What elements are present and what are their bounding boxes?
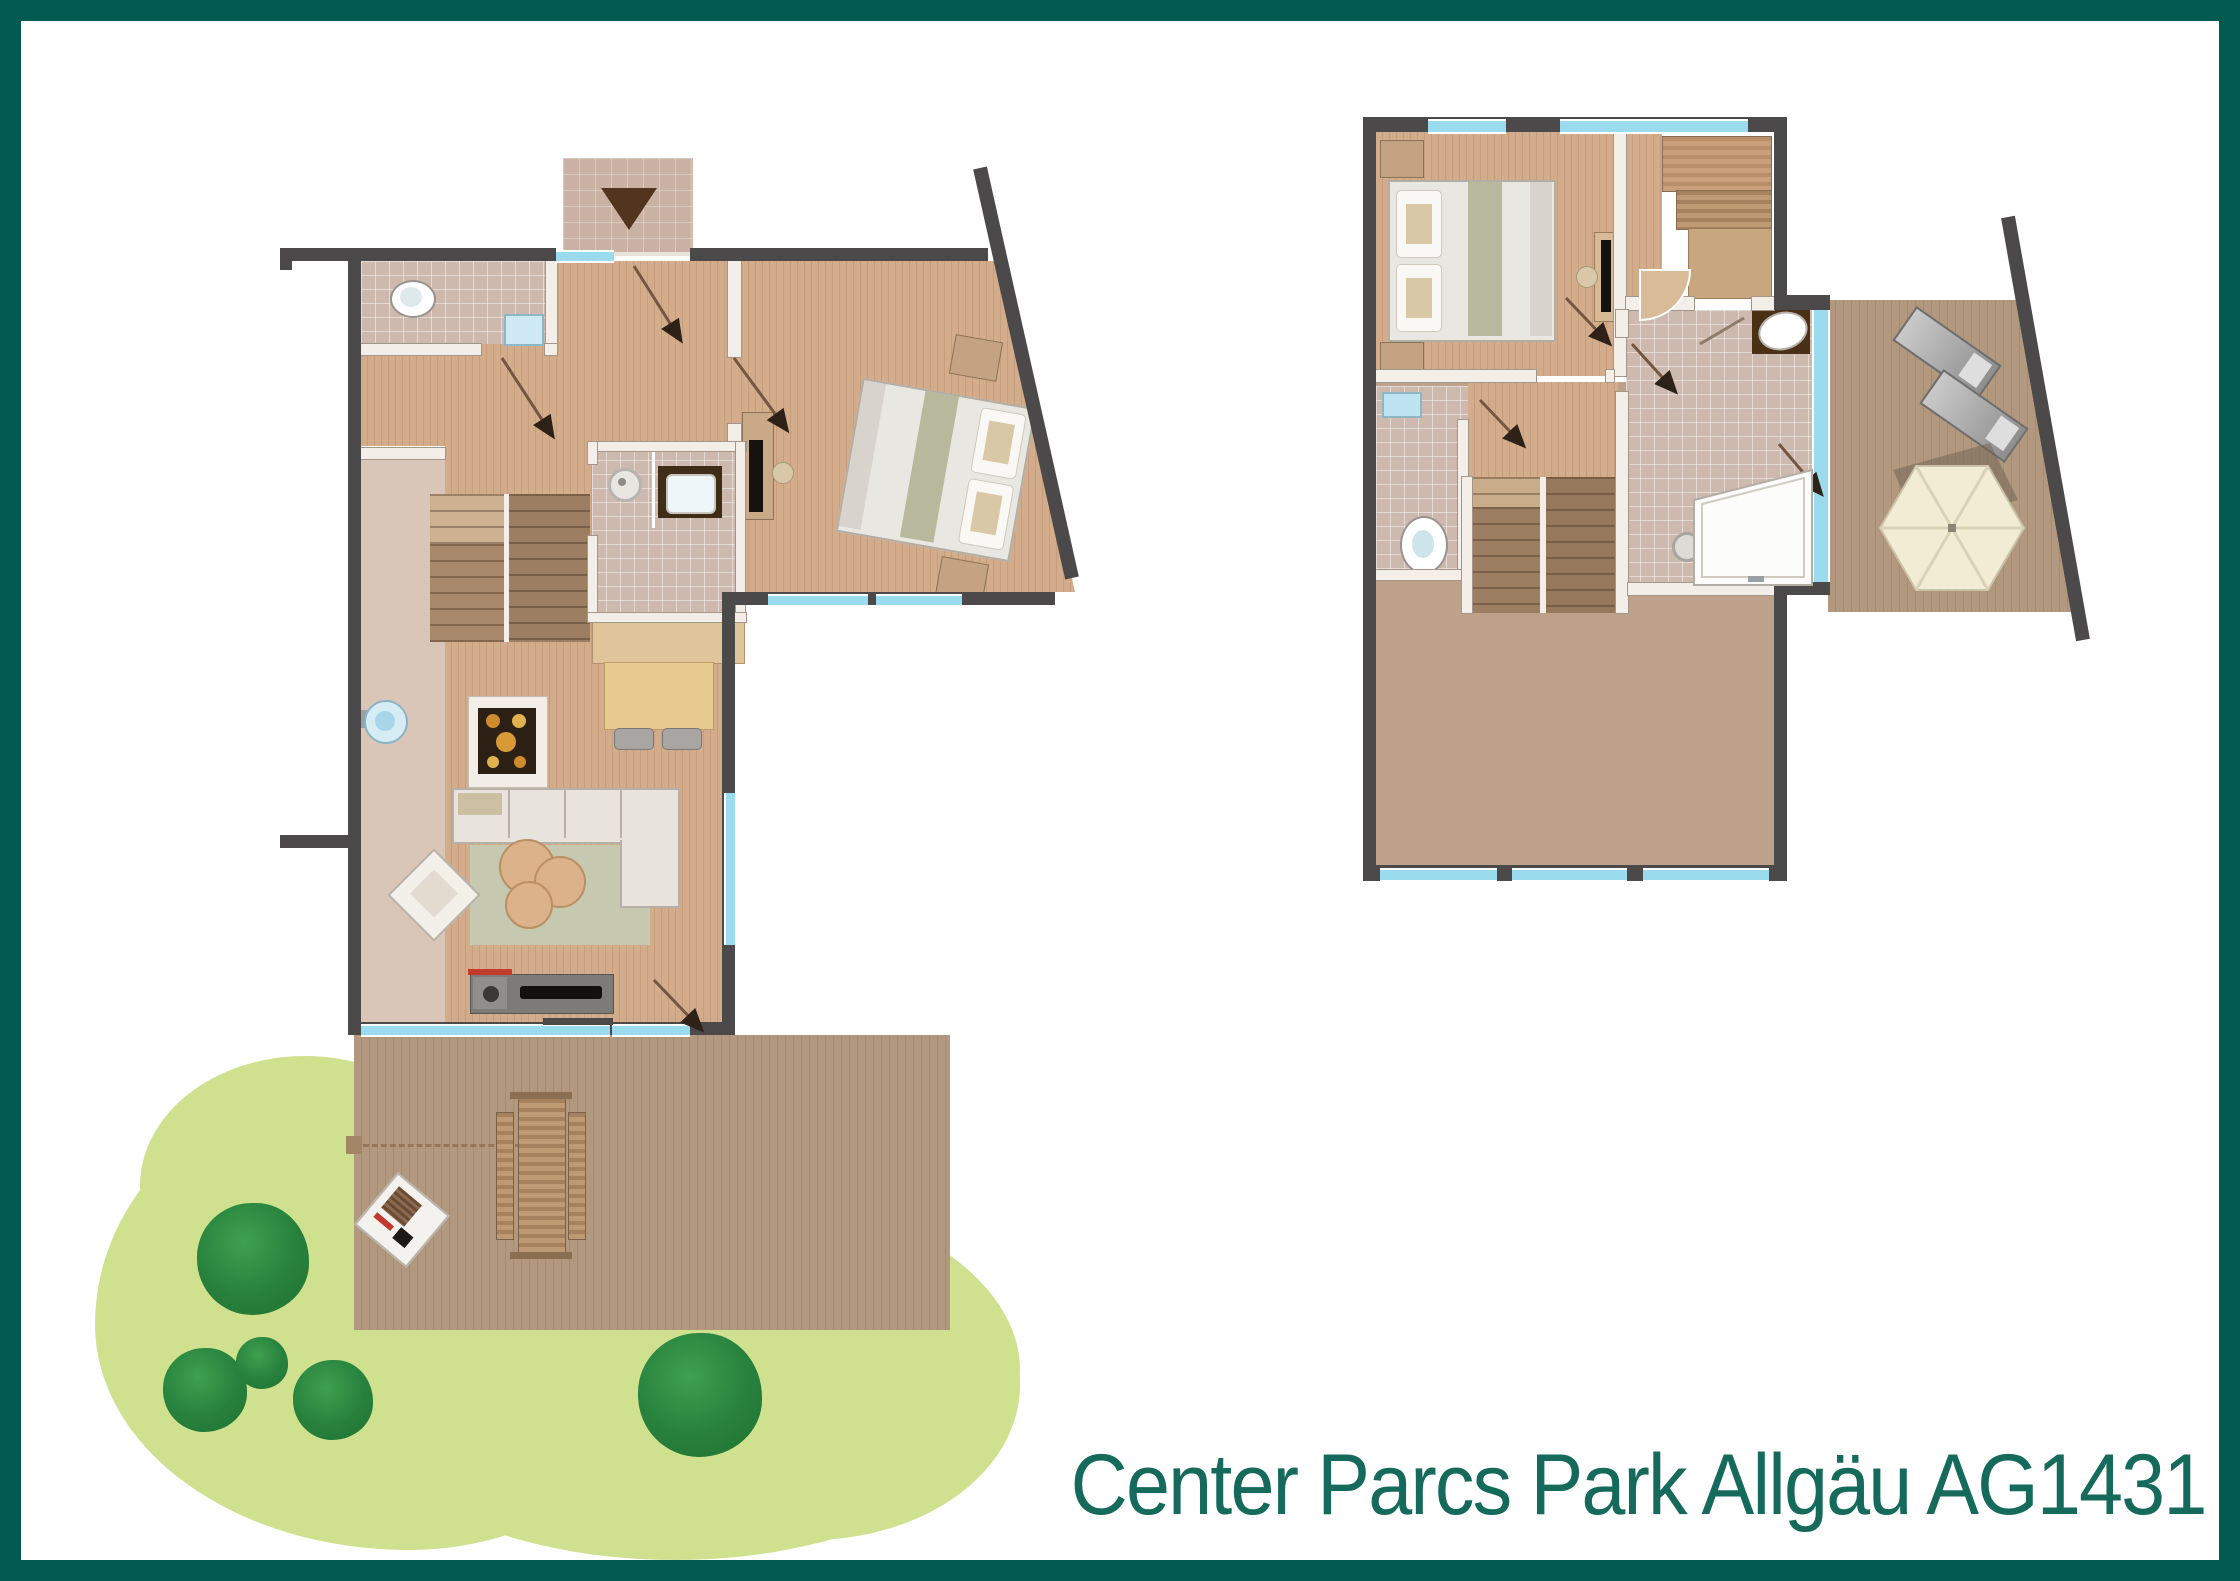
caption-title: Center Parcs Park Allgäu AG1431 [1071, 1436, 2206, 1535]
wall-segment [588, 442, 746, 451]
dining-table [604, 662, 714, 730]
terrace-deck [354, 1035, 950, 1330]
lounger-pillow [1985, 416, 2019, 452]
sliding-door-leaf [543, 1018, 613, 1025]
duvet-fold [1530, 182, 1552, 336]
kitchen-sink-bowl [375, 711, 395, 731]
wall-segment [361, 448, 445, 459]
coffee-table-icon [505, 881, 553, 929]
stool-icon [1576, 266, 1598, 288]
window-icon [1643, 868, 1769, 882]
nightstand [949, 334, 1003, 382]
bed-runner [900, 391, 959, 543]
wall-segment [280, 248, 292, 270]
window-icon [612, 1024, 690, 1037]
staircase-flight [1472, 507, 1540, 613]
window-icon [876, 594, 962, 607]
wall-segment [1363, 117, 1376, 881]
window-icon [1560, 119, 1748, 134]
wall-segment [546, 261, 557, 354]
window-icon [768, 594, 868, 607]
burner-icon [486, 714, 500, 728]
sliding-door-icon [465, 1024, 610, 1037]
wall-segment [588, 442, 597, 464]
washbasin-icon [666, 474, 716, 514]
fireplace-accent [468, 969, 512, 975]
wall-segment [1376, 370, 1536, 382]
wall-segment [1616, 392, 1628, 613]
bed-runner [1468, 182, 1502, 336]
burner-icon [487, 756, 499, 768]
tv-icon [749, 440, 763, 512]
hand-basin-icon [504, 314, 544, 346]
staircase-flight [509, 494, 590, 642]
stool-icon [772, 462, 794, 484]
sauna-bench [1676, 190, 1772, 230]
shower-icon [608, 468, 642, 502]
stool-icon [1672, 532, 1702, 562]
pillow-inner [1406, 204, 1432, 244]
wall-segment [280, 248, 556, 261]
sofa-divider [508, 790, 510, 838]
sauna-bench [1662, 136, 1772, 192]
window-icon [1380, 868, 1497, 882]
wall-segment [348, 248, 361, 1035]
burner-icon [496, 732, 516, 752]
door-threshold [614, 252, 690, 256]
sofa-divider [620, 790, 622, 838]
nightstand [1380, 140, 1424, 178]
wall-segment [1774, 580, 1830, 595]
terrace-post [346, 1136, 362, 1154]
tree-icon [293, 1360, 373, 1440]
sofa-chaise [620, 840, 680, 908]
garden-wall-stub [280, 835, 348, 848]
picnic-table-bar [510, 1252, 572, 1259]
dining-chair [614, 728, 654, 750]
staircase-flight [1472, 477, 1540, 507]
window-icon [1428, 119, 1506, 134]
shower-head-dot [618, 478, 626, 486]
window-icon [556, 250, 614, 263]
wall-segment [588, 536, 597, 622]
tree-icon [236, 1337, 288, 1389]
toilet-bowl [1412, 530, 1434, 558]
pillow-inner [1406, 278, 1432, 318]
wall-segment [545, 344, 557, 355]
wall-segment [1774, 593, 1787, 881]
window-icon [361, 1024, 465, 1037]
burner-icon [512, 714, 526, 728]
double-bed [836, 378, 1036, 562]
tree-icon [163, 1348, 247, 1432]
wall-segment [728, 261, 741, 357]
barbecue-burner [392, 1227, 413, 1248]
entrance-arrow-icon [601, 188, 657, 230]
wall-segment [1376, 570, 1468, 580]
wall-segment [1462, 477, 1472, 613]
wall-segment [1606, 370, 1614, 382]
wall-segment [1614, 132, 1626, 376]
cistern-icon [1382, 392, 1422, 418]
tree-icon [638, 1333, 762, 1457]
burner-icon [514, 756, 526, 768]
picnic-bench [496, 1112, 514, 1240]
window-icon [1512, 868, 1627, 882]
staircase-flight [1546, 477, 1625, 613]
sofa-blanket [458, 793, 502, 815]
floorplan-image: Center Parcs Park Allgäu AG1431 [0, 0, 2240, 1581]
sauna-bench-lower [1688, 228, 1772, 299]
glass-wall-icon [1812, 310, 1830, 582]
sofa-divider [564, 790, 566, 838]
speaker-icon [483, 986, 499, 1002]
wall-segment [1616, 310, 1628, 337]
shower-screen [652, 446, 655, 528]
window-icon [724, 793, 737, 945]
wall-segment [690, 248, 988, 261]
wall-segment [1774, 117, 1787, 310]
wall-segment [1774, 295, 1830, 310]
wall-segment [1628, 583, 1778, 595]
picnic-bench [568, 1112, 586, 1240]
landing-floor [1468, 382, 1618, 477]
wall-segment [361, 344, 481, 355]
wall-segment [1752, 297, 1774, 310]
wall-segment [1626, 297, 1694, 310]
tv-icon [1601, 240, 1611, 312]
tv-icon [520, 986, 602, 999]
nightstand [1380, 342, 1424, 372]
picnic-table-bar [510, 1092, 572, 1099]
toilet-bowl [400, 287, 422, 307]
sauna-floor [1626, 132, 1662, 297]
picnic-table-top [518, 1098, 566, 1254]
staircase-flight [430, 544, 504, 642]
staircase-flight [430, 494, 504, 544]
armchair-cushion [410, 870, 458, 918]
double-bed [1388, 180, 1556, 342]
tree-icon [197, 1203, 309, 1315]
dining-chair [662, 728, 702, 750]
